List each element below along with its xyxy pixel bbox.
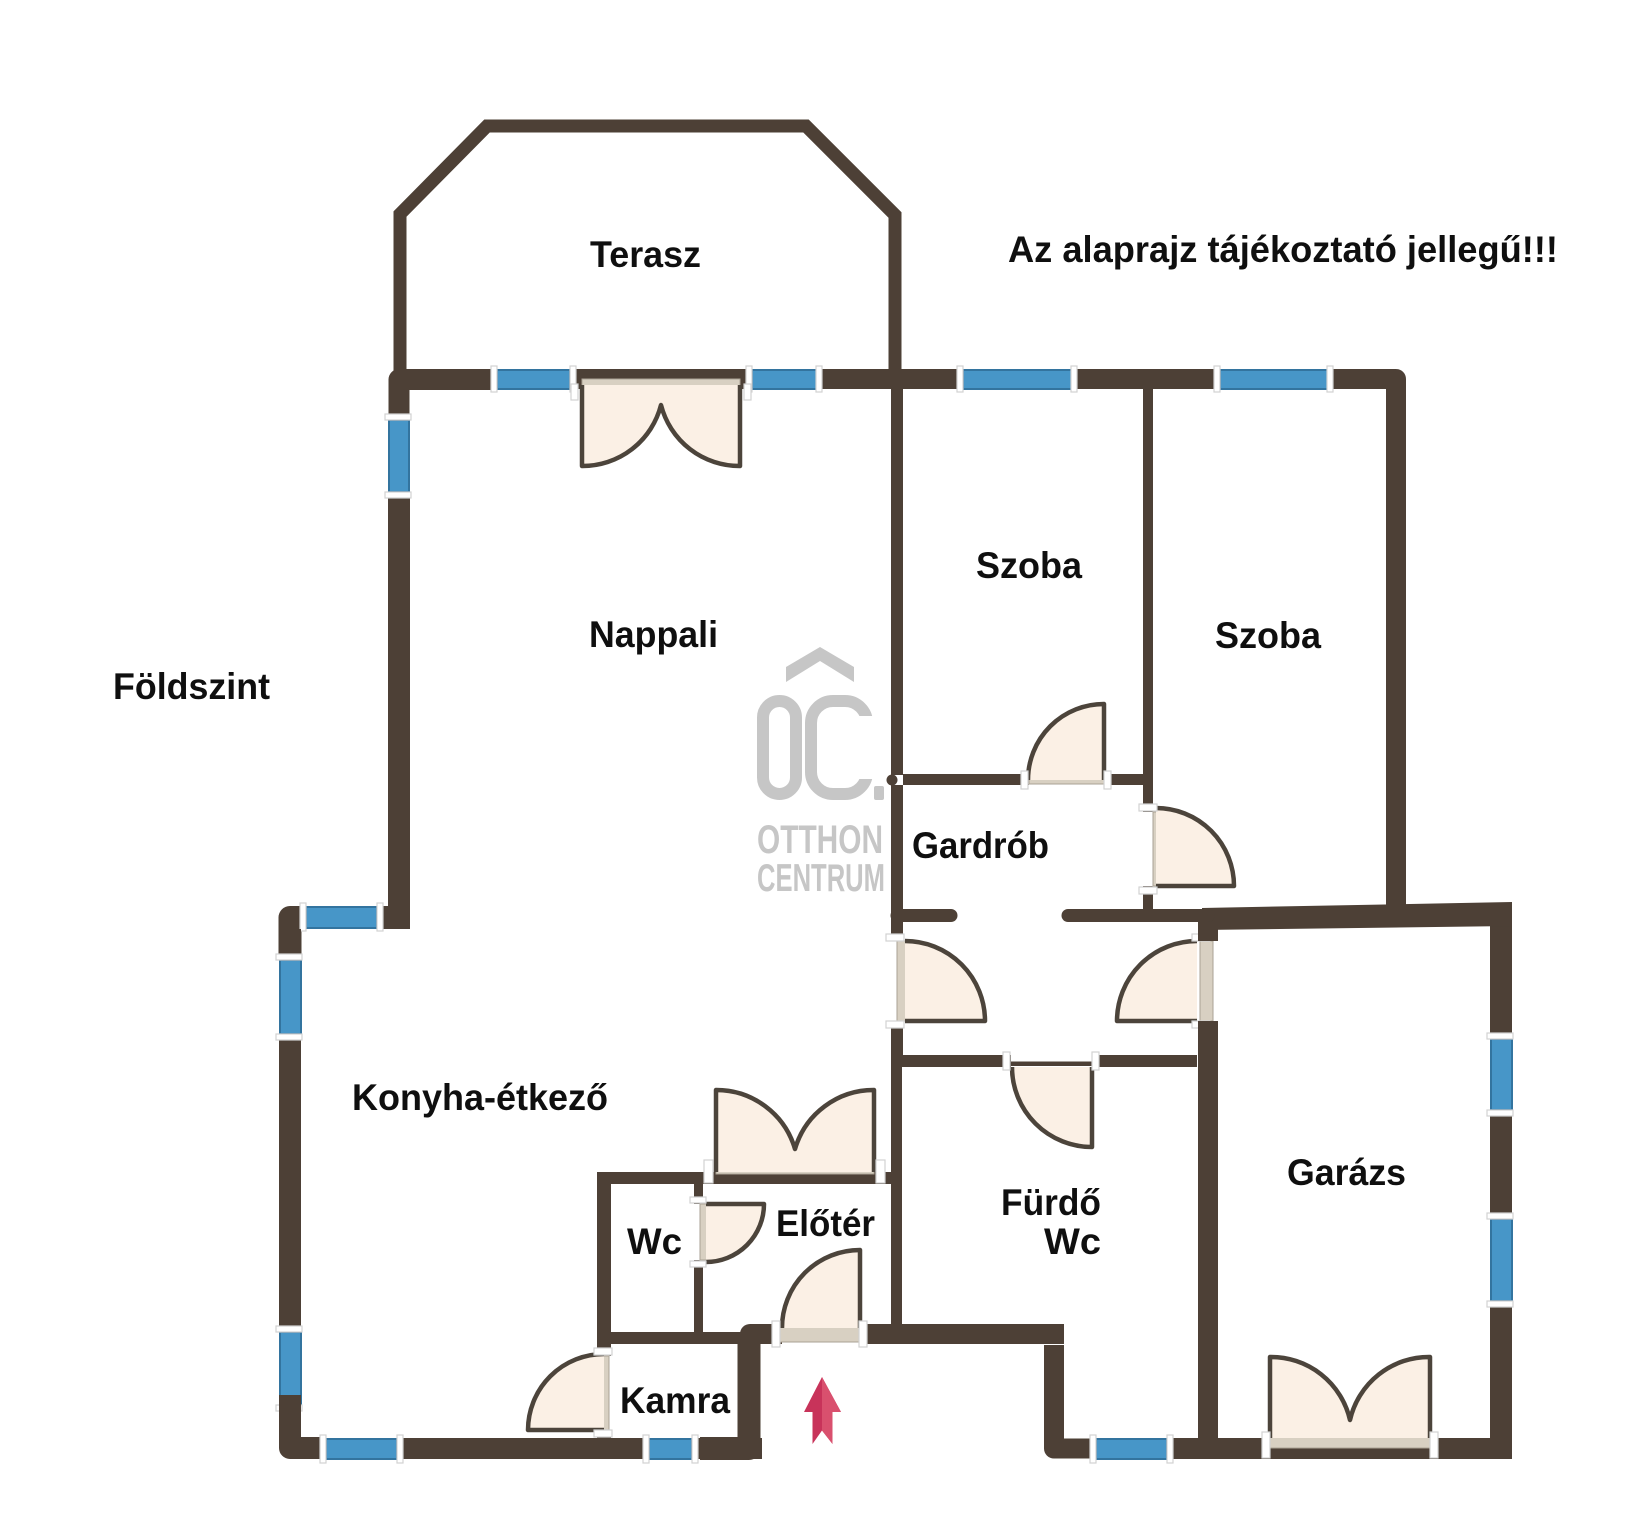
svg-text:Szoba: Szoba bbox=[1215, 615, 1321, 656]
svg-text:Előtér: Előtér bbox=[776, 1203, 875, 1244]
svg-text:Gardrób: Gardrób bbox=[912, 825, 1049, 866]
svg-text:Kamra: Kamra bbox=[620, 1380, 730, 1421]
svg-text:Nappali: Nappali bbox=[589, 614, 718, 655]
svg-text:Szoba: Szoba bbox=[976, 545, 1082, 586]
svg-text:Földszint: Földszint bbox=[113, 666, 270, 707]
svg-text:Wc: Wc bbox=[1044, 1221, 1101, 1262]
svg-text:Az alaprajz tájékoztató jelleg: Az alaprajz tájékoztató jellegű!!! bbox=[1008, 229, 1558, 270]
svg-text:Konyha-étkező: Konyha-étkező bbox=[352, 1077, 608, 1118]
svg-text:Terasz: Terasz bbox=[590, 234, 701, 275]
svg-text:OTTHON: OTTHON bbox=[757, 818, 883, 862]
svg-text:Garázs: Garázs bbox=[1287, 1152, 1406, 1193]
svg-text:CENTRUM: CENTRUM bbox=[757, 857, 885, 900]
svg-text:Fürdő: Fürdő bbox=[1001, 1182, 1101, 1223]
svg-text:Wc: Wc bbox=[627, 1221, 682, 1262]
